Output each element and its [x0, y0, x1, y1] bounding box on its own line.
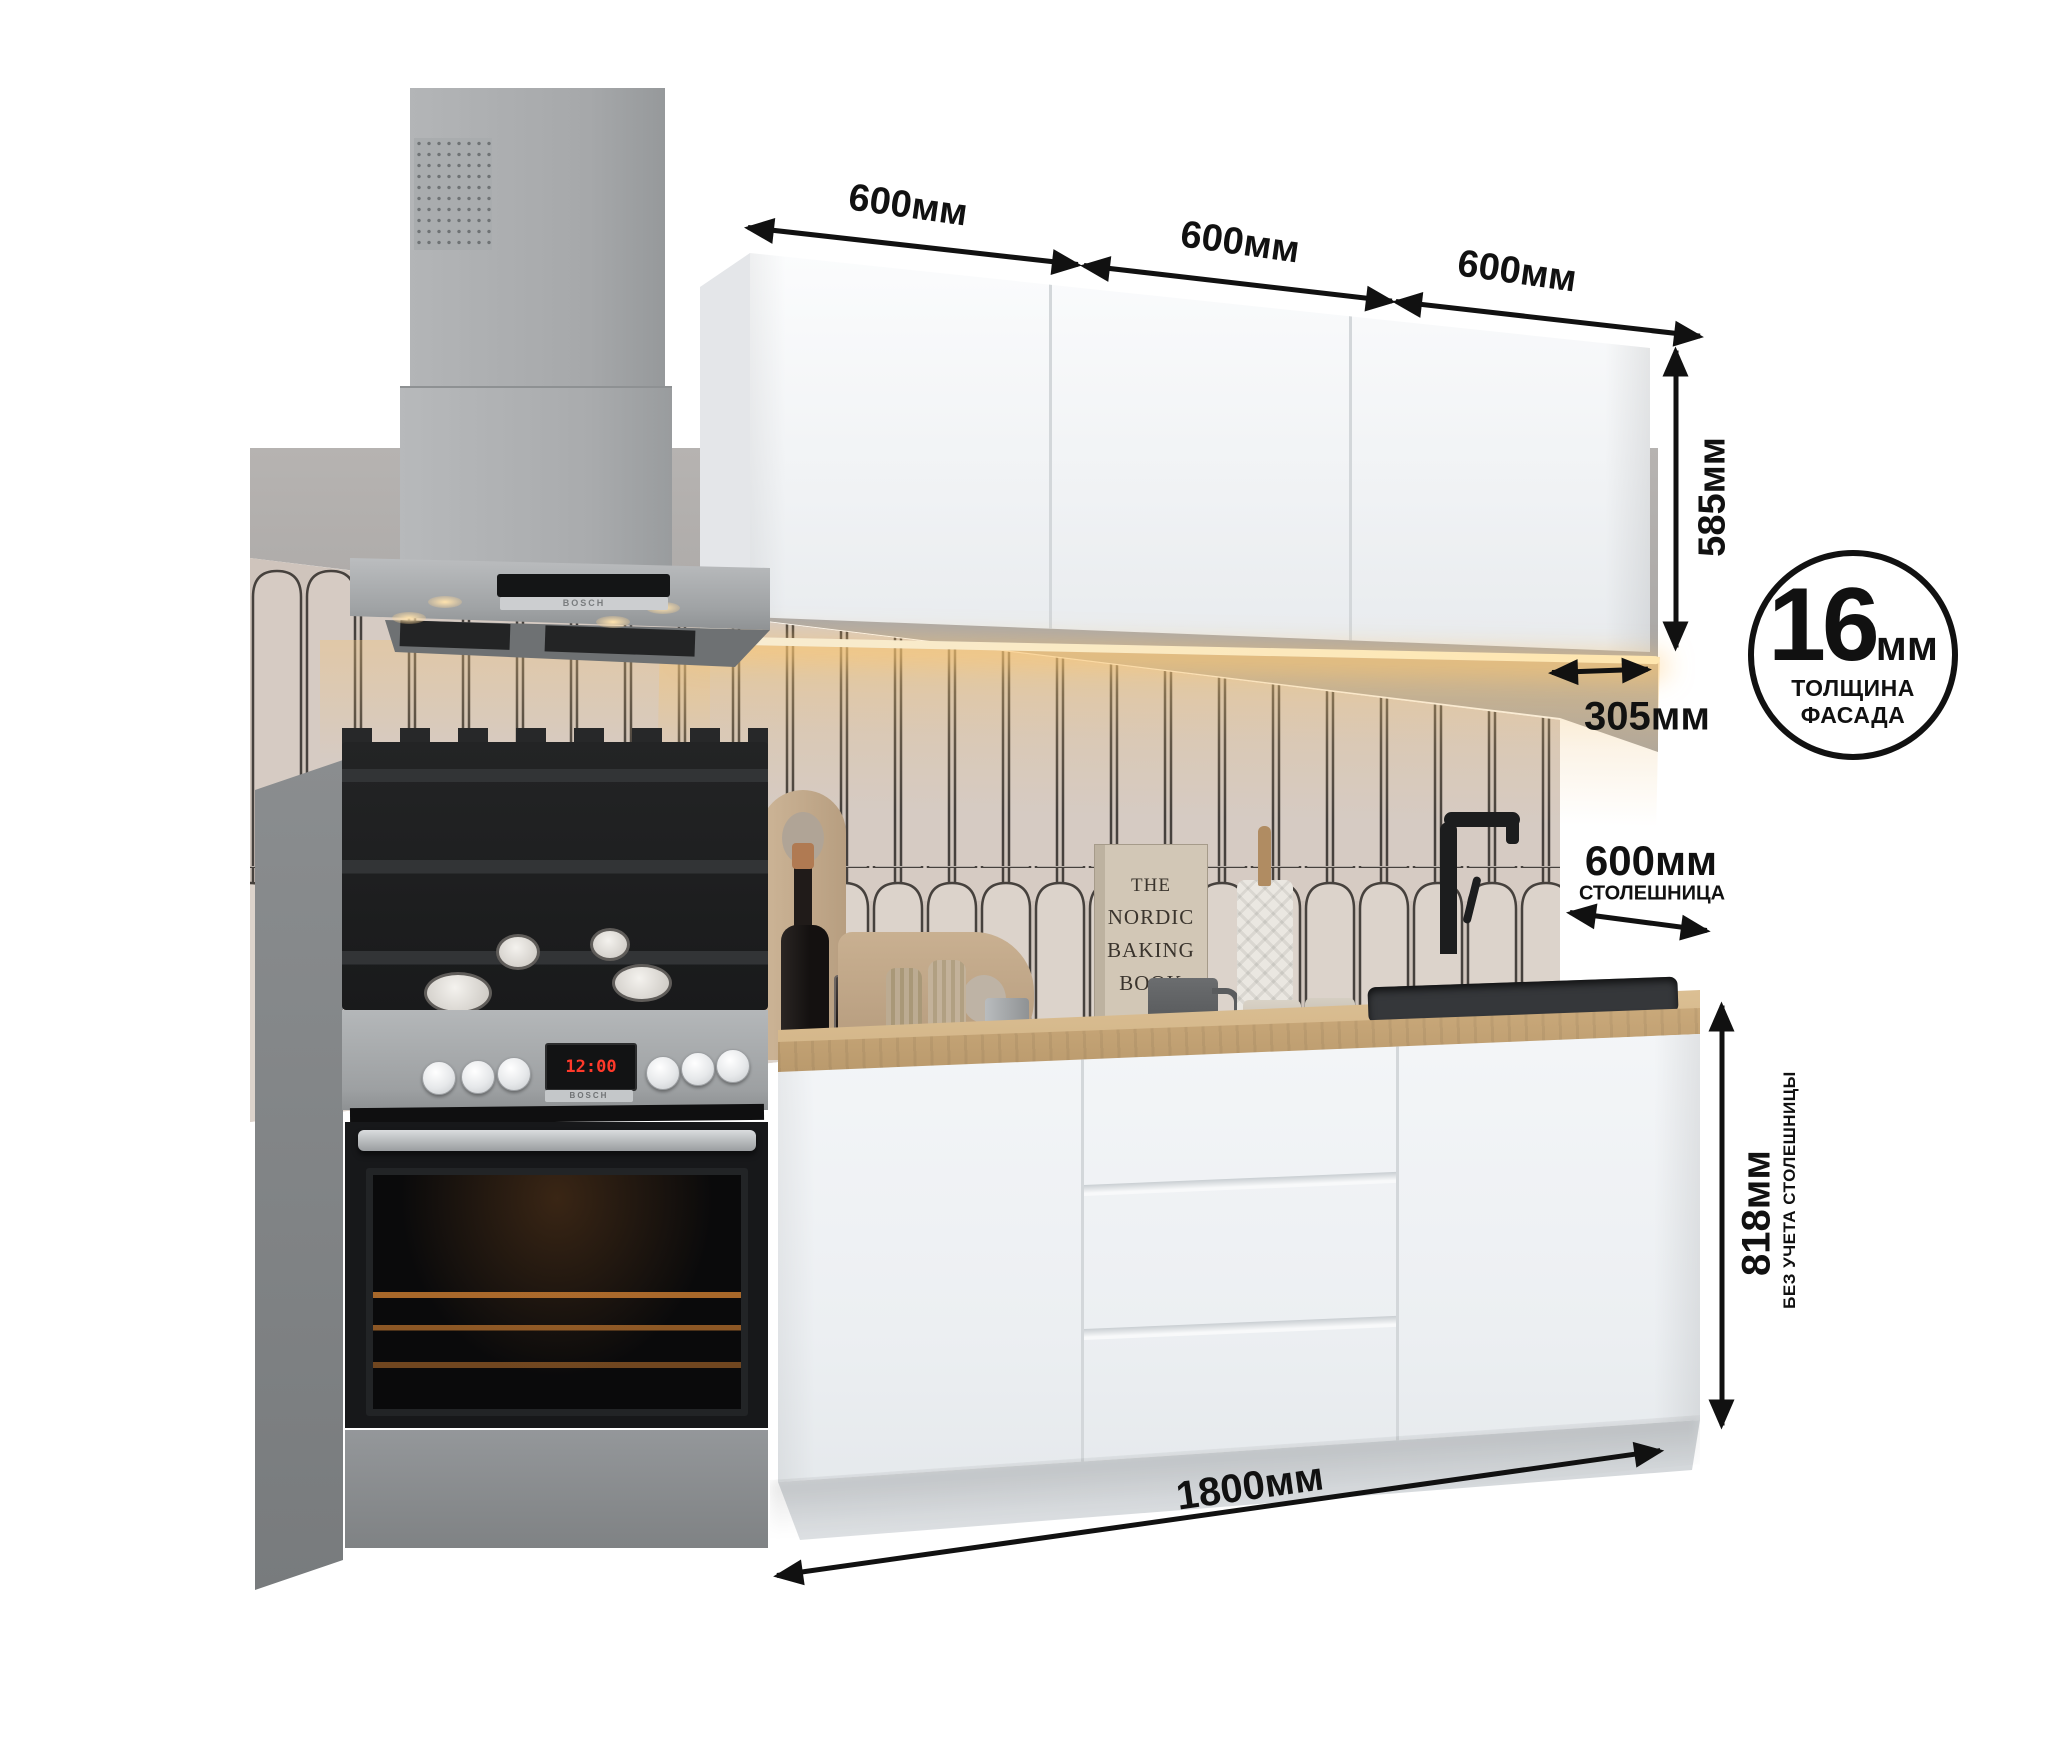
stove-base-drawer — [345, 1430, 768, 1548]
upper-door-gap-1 — [1049, 253, 1052, 652]
book-title-line1: THE — [1131, 875, 1171, 897]
faucet-column — [1440, 822, 1457, 954]
stove-knob-5 — [681, 1052, 715, 1086]
dim-label-countertop: 600мм — [1585, 837, 1717, 885]
dim-label-base-height: 818мм — [1735, 1150, 1780, 1276]
burner-rear-right — [590, 928, 630, 961]
badge-caption-1: ТОЛЩИНА — [1791, 675, 1915, 702]
badge-value: 16 — [1768, 581, 1876, 669]
badge-unit: мм — [1876, 628, 1938, 664]
hood-filter-right — [545, 625, 696, 656]
stove-knob-1 — [422, 1061, 456, 1095]
hood-light-2 — [428, 596, 462, 608]
kitchen-product-image: BOSCH THE NORDIC BAKING BOOK BREW — [0, 0, 2048, 1757]
dim-label-top-3: 600мм — [1455, 242, 1579, 301]
stove-knob-2 — [461, 1060, 495, 1094]
dim-label-top-2: 600мм — [1178, 213, 1302, 272]
badge-value-row: 16 мм — [1768, 581, 1938, 669]
dim-arrow-base-height — [1720, 1006, 1725, 1426]
faucet-tip — [1506, 820, 1519, 844]
stove-display-panel: 12:00 — [545, 1043, 637, 1091]
book-title-line3: BAKING — [1107, 938, 1195, 963]
stove-clock: 12:00 — [565, 1057, 616, 1077]
stove-knob-6 — [716, 1049, 750, 1083]
stove-brand-label: BOSCH — [545, 1090, 633, 1102]
dim-caption-countertop: СТОЛЕШНИЦА — [1579, 883, 1725, 906]
dim-label-top-1: 600мм — [846, 176, 970, 235]
stove-side-panel — [255, 760, 343, 1590]
hood-brand-label: BOSCH — [500, 597, 668, 610]
hood-light-3 — [596, 616, 630, 628]
dim-label-upper-height: 585мм — [1692, 437, 1735, 557]
wine-bottle-cap — [792, 843, 814, 869]
stove-knob-3 — [497, 1057, 531, 1091]
facade-thickness-badge: 16 мм ТОЛЩИНА ФАСАДА — [1748, 550, 1958, 760]
stove-cooktop — [342, 742, 768, 1010]
stove-knob-4 — [646, 1056, 680, 1090]
hood-control-strip — [497, 574, 670, 597]
dim-caption-base-height: БЕЗ УЧЕТА СТОЛЕШНИЦЫ — [1780, 1071, 1800, 1309]
burner-front-left — [424, 972, 492, 1014]
book-title-line2: NORDIC — [1108, 905, 1195, 930]
hood-chimney-lower — [400, 386, 672, 576]
oven-window — [366, 1168, 748, 1416]
badge-caption-2: ФАСАДА — [1801, 702, 1906, 729]
dim-label-upper-depth: 305мм — [1584, 695, 1710, 740]
hood-vent-grid — [414, 138, 492, 250]
wooden-spoon — [1258, 826, 1271, 886]
hood-light-1 — [392, 612, 426, 624]
dim-arrow-upper-height — [1674, 351, 1679, 648]
oven-handle — [358, 1130, 756, 1151]
burner-rear-left — [496, 934, 540, 970]
hood-filter-left — [400, 620, 511, 650]
upper-door-gap-2 — [1349, 253, 1352, 652]
dim-arrow-countertop — [1570, 910, 1707, 933]
burner-front-right — [612, 964, 672, 1002]
